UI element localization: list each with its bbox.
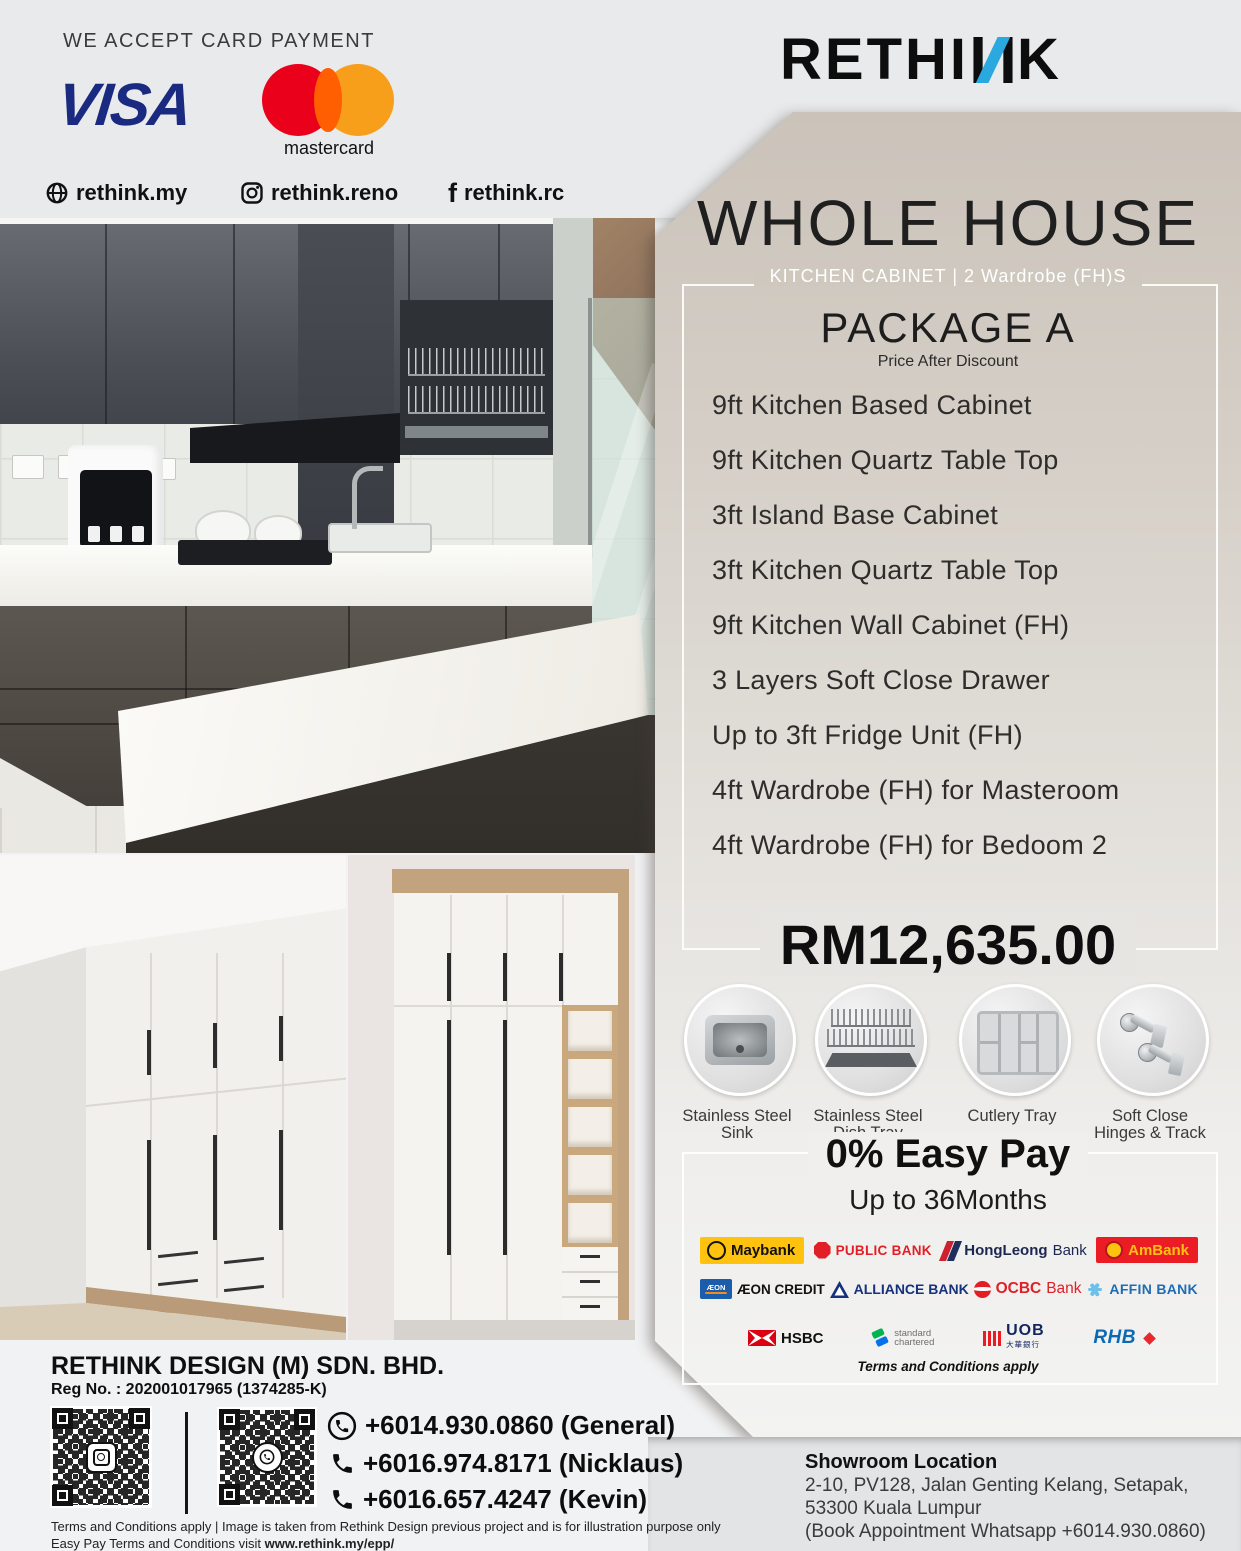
footer-terms-line2: Easy Pay Terms and Conditions visit www.…	[51, 1536, 394, 1551]
showroom-panel: Showroom Location 2-10, PV128, Jalan Gen…	[648, 1437, 1241, 1551]
easy-pay-terms: Terms and Conditions apply	[682, 1359, 1214, 1374]
feature-dish-tray: Stainless SteelDish Tray	[815, 984, 927, 1096]
phone-row-kevin[interactable]: +6016.657.4247 (Kevin)	[330, 1484, 647, 1515]
cutlery-tray-icon	[959, 984, 1071, 1096]
feature-cutlery-tray: Cutlery Tray	[959, 984, 1071, 1096]
bank-logo-ocbc: OCBC Bank	[974, 1280, 1082, 1298]
package-item: Up to 3ft Fridge Unit (FH)	[712, 708, 1119, 763]
panel-title: WHOLE HOUSE	[660, 186, 1236, 260]
package-price: RM12,635.00	[682, 912, 1214, 977]
dish-tray-icon	[815, 984, 927, 1096]
company-reg-no: Reg No. : 202001017965 (1374285-K)	[51, 1381, 327, 1399]
website-link-label: rethink.my	[76, 180, 187, 206]
facebook-icon: f	[448, 182, 457, 204]
mastercard-logo: mastercard	[262, 62, 396, 162]
bank-logo-hong-leong: HongLeong Bank	[941, 1241, 1087, 1259]
instagram-link[interactable]: rethink.reno	[240, 180, 398, 206]
wardrobe-open-shelves	[562, 1005, 618, 1247]
company-name: RETHINK DESIGN (M) SDN. BHD.	[51, 1352, 444, 1381]
phone-icon	[330, 1487, 355, 1512]
footer-terms-line1: Terms and Conditions apply | Image is ta…	[51, 1519, 721, 1534]
flyer-page: WE ACCEPT CARD PAYMENT VISA mastercard r…	[0, 0, 1241, 1551]
kitchen-photo	[0, 218, 655, 853]
package-item: 9ft Kitchen Wall Cabinet (FH)	[712, 598, 1119, 653]
rethink-logo-n-icon	[972, 37, 1014, 83]
package-item: 3ft Kitchen Quartz Table Top	[712, 543, 1119, 598]
facebook-link[interactable]: f rethink.rc	[448, 180, 564, 206]
public-bank-octagon-icon	[814, 1242, 831, 1259]
globe-icon	[45, 181, 69, 205]
bank-logo-aeon-credit: ÆON ÆON CREDIT	[700, 1279, 825, 1299]
mastercard-label: mastercard	[262, 138, 396, 159]
card-payment-label: WE ACCEPT CARD PAYMENT	[63, 30, 375, 53]
aeon-box-icon: ÆON	[700, 1279, 732, 1299]
visa-logo: VISA	[54, 70, 193, 139]
bank-logo-ambank: AmBank	[1096, 1237, 1198, 1263]
alliance-triangle-icon	[830, 1281, 849, 1298]
maybank-tiger-icon	[707, 1241, 726, 1260]
showroom-address-line3: (Book Appointment Whatsapp +6014.930.086…	[805, 1521, 1206, 1543]
package-note: Price After Discount	[682, 353, 1214, 371]
bank-logo-rhb: RHB	[1093, 1327, 1154, 1349]
phone-row-general[interactable]: +6014.930.0860 (General)	[327, 1410, 675, 1441]
package-item: 4ft Wardrobe (FH) for Bedoom 2	[712, 818, 1119, 873]
ocbc-circle-icon	[974, 1281, 991, 1298]
hsbc-hexagon-icon	[748, 1330, 776, 1346]
facebook-link-label: rethink.rc	[464, 180, 564, 206]
package-name: PACKAGE A	[682, 304, 1214, 352]
package-item: 9ft Kitchen Quartz Table Top	[712, 433, 1119, 488]
bank-logo-alliance-bank: ALLIANCE BANK	[830, 1281, 969, 1298]
kitchen-cooktop	[178, 540, 332, 565]
showroom-address-line2: 53300 Kuala Lumpur	[805, 1498, 981, 1520]
instagram-qr-code[interactable]	[50, 1406, 152, 1508]
website-link[interactable]: rethink.my	[45, 180, 187, 206]
bank-logo-hsbc: HSBC	[748, 1330, 824, 1347]
epp-url[interactable]: www.rethink.my/epp/	[265, 1536, 395, 1551]
bank-logo-standard-chartered: standardchartered	[872, 1329, 934, 1348]
kitchen-dish-rack-compartment	[400, 300, 553, 455]
qr-divider	[185, 1412, 188, 1514]
feature-sink: Stainless SteelSink	[684, 984, 796, 1096]
ambank-circle-icon	[1105, 1241, 1123, 1259]
package-item-list: 9ft Kitchen Based Cabinet 9ft Kitchen Qu…	[712, 378, 1119, 873]
feature-hinges: Soft CloseHinges & Track	[1097, 984, 1209, 1096]
instagram-link-label: rethink.reno	[271, 180, 398, 206]
sink-icon	[684, 984, 796, 1096]
mastercard-overlap	[314, 68, 342, 132]
instagram-icon	[240, 181, 264, 205]
uob-bars-icon	[983, 1331, 1001, 1346]
whatsapp-icon	[327, 1411, 357, 1441]
bank-logo-uob: UOB大華銀行	[983, 1324, 1045, 1352]
rethink-logo-part2: K	[1017, 26, 1062, 93]
rhb-diamond-icon	[1143, 1332, 1156, 1345]
bank-logo-maybank: Maybank	[700, 1237, 804, 1264]
wardrobe-photo-left	[0, 855, 346, 1340]
panel-subtitle: KITCHEN CABINET | 2 Wardrobe (FH)S	[660, 266, 1236, 287]
package-item: 3ft Island Base Cabinet	[712, 488, 1119, 543]
rethink-logo-part1: RETHI	[780, 26, 969, 93]
standard-chartered-icon	[872, 1329, 889, 1348]
hinges-icon	[1097, 984, 1209, 1096]
qr-instagram-icon	[86, 1442, 117, 1473]
phone-icon	[330, 1451, 355, 1476]
qr-whatsapp-icon	[252, 1442, 283, 1473]
easy-pay-subtitle: Up to 36Months	[682, 1184, 1214, 1216]
phone-row-nicklaus[interactable]: +6016.974.8171 (Nicklaus)	[330, 1448, 683, 1479]
bank-logo-public-bank: PUBLIC BANK	[814, 1242, 932, 1259]
kitchen-faucet	[352, 466, 383, 529]
rethink-logo: RETHI K	[780, 26, 1062, 93]
wardrobe-photo-right	[348, 855, 635, 1340]
showroom-heading: Showroom Location	[805, 1451, 997, 1474]
package-item: 4ft Wardrobe (FH) for Masteroom	[712, 763, 1119, 818]
wardrobe-drawers	[562, 1247, 618, 1320]
package-item: 9ft Kitchen Based Cabinet	[712, 378, 1119, 433]
easy-pay-title: 0% Easy Pay	[682, 1132, 1214, 1177]
whatsapp-qr-code[interactable]	[217, 1407, 317, 1507]
bank-logo-affin-bank: AFFIN BANK	[1086, 1280, 1198, 1298]
hong-leong-stripes-icon	[941, 1241, 959, 1259]
package-item: 3 Layers Soft Close Drawer	[712, 653, 1119, 708]
affin-flower-icon	[1086, 1280, 1104, 1298]
showroom-address-line1: 2-10, PV128, Jalan Genting Kelang, Setap…	[805, 1475, 1188, 1497]
